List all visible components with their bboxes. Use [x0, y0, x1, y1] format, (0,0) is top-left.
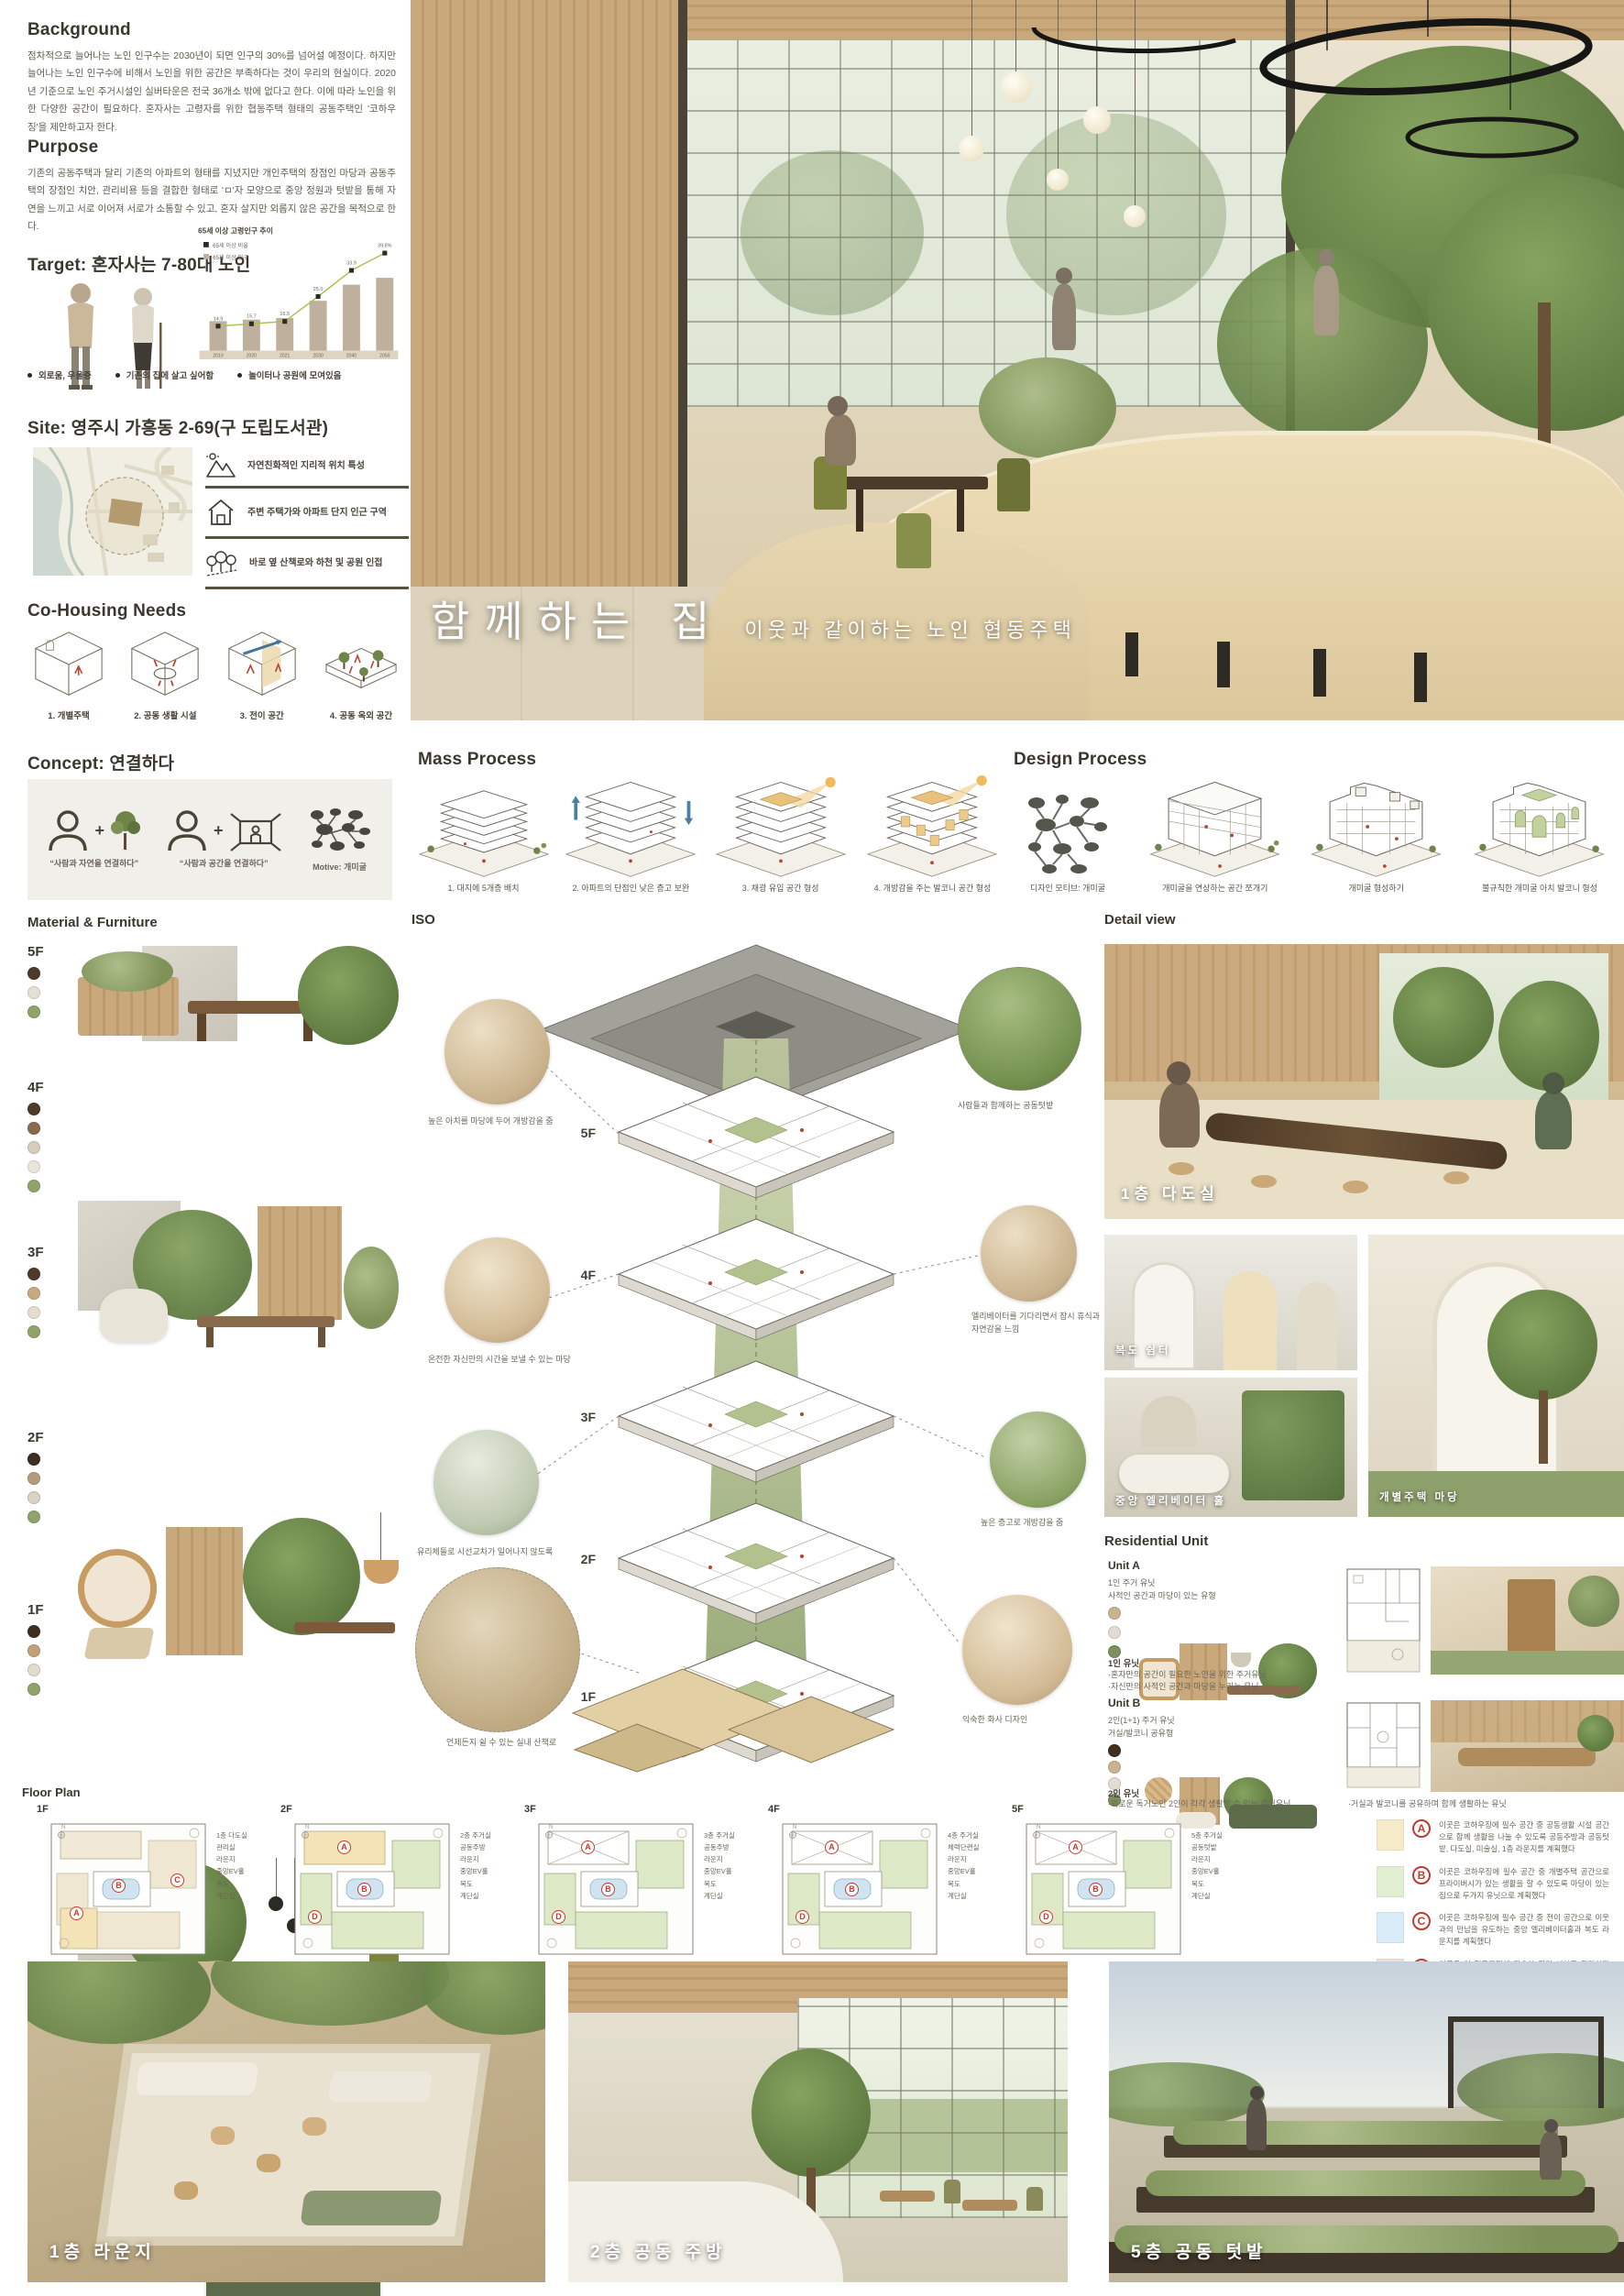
chair-olive: [997, 458, 1030, 511]
mass-step-1-diagram: [415, 775, 553, 878]
callout-high-ceiling: [990, 1412, 1086, 1508]
design-step-caption: 디자인 모티브: 개미굴: [1008, 883, 1127, 895]
design-step-2-diagram: [1144, 775, 1286, 878]
iso-note-right: 엘리베이터를 기다리면서 잠시 휴식과 자연감을 느낌: [971, 1311, 1100, 1335]
svg-text:N: N: [1037, 1825, 1040, 1830]
photo-caption: 중앙 엘리베이터 홀: [1115, 1493, 1226, 1508]
callout-indoor-walkway: [415, 1567, 580, 1732]
plan-marker: B: [601, 1883, 615, 1896]
svg-text:14.9: 14.9: [214, 316, 224, 322]
plan-label: 5F: [1012, 1804, 1024, 1815]
planter-greens: [211, 1961, 449, 2026]
material-color-dot: [1108, 1744, 1121, 1757]
iso-note-left: 온전한 자신만의 시간을 보낼 수 있는 마당: [428, 1354, 575, 1367]
photo-caption: 개별주택 마당: [1379, 1489, 1460, 1504]
list-item: 공동주방: [704, 1841, 761, 1853]
iso-cube-shared-facility: [125, 627, 205, 704]
list-item: 라운지: [704, 1853, 761, 1865]
elevator-hall-photo: 중앙 엘리베이터 홀: [1104, 1378, 1357, 1517]
svg-text:2021: 2021: [280, 353, 290, 358]
wood-stool: [294, 1622, 395, 1633]
floor-label: 4F: [27, 1080, 44, 1095]
legend-row-b: B 이곳은 코하우징에 필수 공간 중 개별주택 공간으로 프라이버시가 있는 …: [1377, 1866, 1624, 1903]
svg-text:3F: 3F: [581, 1410, 597, 1424]
unit-note: ·자신만의 사적인 공간과 마당을 누리는 유닛: [1108, 1681, 1337, 1694]
mass-step-caption: 1. 대지에 5개층 배치: [412, 883, 554, 895]
planter-crops: [1146, 2170, 1586, 2196]
floor-plan-3f: 3F N A B D 3층 주거실공동주방라운지중앙EV홀복도계단실: [524, 1804, 536, 1815]
chair-olive: [896, 513, 931, 568]
material-color-dot: [27, 1287, 40, 1300]
plan-marker: D: [796, 1910, 809, 1924]
callout-private-yard: [444, 1237, 550, 1343]
private-yard-photo: 개별주택 마당: [1368, 1235, 1624, 1517]
pendant-cord: [276, 1858, 277, 1898]
concept-caption: “사람과 자연을 연결하다”: [47, 858, 141, 871]
floorplan-title: Floor Plan: [22, 1785, 81, 1799]
ring-lights: [997, 0, 1624, 211]
unit-label: 1인 유닛: [1108, 1656, 1139, 1669]
site-map: [33, 447, 192, 576]
person-standing: [1313, 266, 1339, 335]
chair: [944, 2180, 960, 2203]
svg-text:2040: 2040: [346, 353, 357, 358]
material-color-dot: [27, 1511, 40, 1523]
list-item: 체력단련실: [948, 1841, 1004, 1853]
design-step-caption: 개미굴 형성하기: [1303, 883, 1450, 895]
bench-leg: [197, 1014, 206, 1041]
needs-title: Co-Housing Needs: [27, 601, 186, 621]
plan-marker: A: [70, 1906, 83, 1920]
chair: [1026, 2187, 1043, 2211]
light-cord: [971, 0, 972, 137]
iso-cube-private-home: [28, 627, 109, 704]
material-color-dot: [27, 1180, 40, 1192]
list-item: 관리실: [216, 1841, 273, 1853]
legend-swatch: [1377, 1866, 1404, 1897]
unit-desc: 2인(1+1) 주거 유닛 거실/발코니 공유형: [1108, 1714, 1245, 1741]
person-head: [1544, 2119, 1558, 2133]
plant-wall: [1242, 1390, 1344, 1500]
material-floor-5f: 5F: [27, 944, 44, 1018]
legend-text: 이곳은 코하우징에 필수 공간 중 개별주택 공간으로 프라이버시가 있는 생활…: [1439, 1866, 1609, 1903]
material-color-dot: [27, 1306, 40, 1319]
floor-cushion: [1343, 1181, 1368, 1193]
list-item: 공동텃밭: [1191, 1841, 1248, 1853]
wood-slat-wall: [411, 0, 686, 642]
stool: [1414, 653, 1427, 702]
svg-text:N: N: [793, 1825, 796, 1830]
plan-marker: A: [825, 1840, 839, 1854]
floor-label: 5F: [27, 944, 44, 960]
divider: [205, 587, 409, 589]
floor-cushion: [1169, 1162, 1194, 1175]
pouf: [257, 2154, 280, 2172]
bottom-caption: 5층 공동 텃밭: [1131, 2238, 1267, 2263]
material-color-dot: [27, 1491, 40, 1504]
svg-text:2F: 2F: [581, 1552, 597, 1566]
svg-text:2050: 2050: [379, 353, 390, 358]
plan-marker: C: [170, 1873, 184, 1887]
green-sofa: [300, 2191, 442, 2225]
plan-drawing: N: [46, 1820, 211, 1958]
plan-marker: B: [845, 1883, 859, 1896]
concept-motive-caption: Motive: 개미굴: [306, 862, 372, 874]
mass-step-caption: 4. 개방감을 주는 발코니 공간 형성: [857, 883, 1008, 895]
material-dots: [27, 1103, 44, 1192]
plus-icon: +: [94, 821, 104, 840]
floor-plan-2f: 2F N A B D 2층 주거실공동주방라운지중앙EV홀복도계단실: [280, 1804, 292, 1815]
needs-diagrams: 1. 개별주택 2. 공동 생활 시설 3. 전이 공간 4. 공동 옥외 공간: [24, 627, 409, 721]
target-bullet: 기존의 집에 살고 싶어함: [126, 368, 214, 381]
iso-note-left: 높은 아치를 마당에 두어 개방감을 줌: [428, 1115, 575, 1128]
list-item: 중앙EV홀: [460, 1865, 517, 1877]
mass-step-2-diagram: [562, 775, 699, 878]
pergola-frame: [1448, 2016, 1604, 2108]
bottom-caption: 1층 라운지: [49, 2238, 156, 2263]
window-post: [678, 0, 687, 605]
needs-item: 2. 공동 생활 시설: [120, 709, 210, 721]
needs-item: 3. 전이 공간: [217, 709, 307, 721]
plan-drawing: N: [290, 1820, 455, 1958]
tree-sample: [298, 946, 399, 1045]
list-item: 계단실: [1191, 1890, 1248, 1902]
material-color-dot: [27, 1472, 40, 1485]
material-color-dot: [27, 1160, 40, 1173]
floor-plan-5f: 5F N A B D 5층 주거실공동텃밭라운지중앙EV홀복도계단실: [1012, 1804, 1024, 1815]
svg-text:N: N: [61, 1825, 65, 1830]
bullet-icon: [115, 373, 120, 378]
tree-icon: [110, 809, 141, 851]
material-color-dot: [27, 967, 40, 980]
grass-sample: [344, 1247, 399, 1329]
material-color-dot: [27, 1625, 40, 1638]
plan-label: 3F: [524, 1804, 536, 1815]
presentation-board: Background 점차적으로 늘어나는 노인 인구수는 2030년이 되면 …: [0, 0, 1624, 2296]
material-color-dot: [27, 1122, 40, 1135]
unit-desc: 1인 주거 유닛 사적인 공간과 마당이 있는 유형: [1108, 1576, 1245, 1603]
armchair: [100, 1289, 168, 1342]
material-dots: [27, 1268, 44, 1338]
tea-room-photo: 1층 다도실: [1104, 944, 1624, 1219]
indoor-tree: [752, 2049, 871, 2177]
iso-title: ISO: [411, 912, 435, 928]
plan-marker: A: [1069, 1840, 1082, 1854]
detail-title: Detail view: [1104, 912, 1624, 928]
list-item: 라운지: [1191, 1853, 1248, 1865]
hero-render-image: 함께하는 집 이웃과 같이하는 노인 협동주택: [411, 0, 1624, 720]
arch-lit: [1223, 1271, 1277, 1370]
list-item: 복도: [216, 1878, 273, 1890]
floor-label: 2F: [27, 1430, 44, 1445]
list-item: 라운지: [948, 1853, 1004, 1865]
kitchen-render: 2층 공동 주방: [568, 1961, 1068, 2282]
person-head: [1250, 2086, 1264, 2100]
iso-cube-transition-space: [222, 627, 302, 704]
svg-text:4F: 4F: [581, 1268, 597, 1282]
material-color-dot: [1108, 1607, 1121, 1620]
unit-label: 2인 유닛: [1108, 1786, 1139, 1799]
plan-room-list: 4층 주거실체력단련실라운지중앙EV홀복도계단실: [948, 1829, 1004, 1902]
white-sofa: [328, 2071, 433, 2103]
design-process-title: Design Process: [1014, 750, 1147, 770]
svg-text:2019: 2019: [213, 353, 223, 358]
wood-table: [880, 2191, 935, 2202]
distant-trees: [1109, 2062, 1265, 2126]
design-motive-ant-nest: [1022, 790, 1114, 878]
svg-text:N: N: [549, 1825, 553, 1830]
svg-text:2030: 2030: [313, 353, 323, 358]
grass: [1431, 1651, 1624, 1675]
list-item: 1층 다도실: [216, 1829, 273, 1841]
material-collage-3f: [78, 1512, 399, 1673]
plan-marker: D: [552, 1910, 565, 1924]
tree-trunk: [1539, 1390, 1548, 1464]
design-step-caption: 개미굴을 연상하는 공간 쪼개기: [1139, 883, 1290, 895]
list-item: 계단실: [216, 1890, 273, 1902]
floor-plan-4f: 4F N A B D 4층 주거실체력단련실라운지중앙EV홀복도계단실: [768, 1804, 780, 1815]
list-item: 계단실: [704, 1890, 761, 1902]
stool: [1313, 649, 1326, 697]
table-leg: [957, 489, 964, 532]
indoor-plant: [979, 357, 1116, 458]
tree: [1568, 1576, 1619, 1627]
callout-elevator-lounge: [981, 1205, 1077, 1302]
target-bullet: 놀이터나 공원에 모여있음: [248, 368, 341, 381]
concept-box: + “사람과 자연을 연결하다” + “사람과 공간을 연결하다” Motive…: [27, 779, 392, 900]
site-feature-text: 바로 옆 산책로와 하천 및 공원 인접: [249, 556, 382, 570]
list-item: 중앙EV홀: [948, 1865, 1004, 1877]
plan-marker: B: [357, 1883, 371, 1896]
site-feature-text: 자연친화적인 지리적 위치 특성: [247, 459, 365, 473]
wood-slat-panel: [166, 1527, 243, 1655]
unit-dots: [1108, 1607, 1121, 1658]
background-title: Background: [27, 20, 131, 40]
legend-row-a: A 이곳은 코하우징에 필수 공간 중 공동생활 시설 공간으로 함께 생활을 …: [1377, 1819, 1624, 1856]
arch: [1297, 1282, 1337, 1370]
callout-glass-screen: [433, 1430, 539, 1535]
plan-room-list: 2층 주거실공동주방라운지중앙EV홀복도계단실: [460, 1829, 517, 1902]
unit-a-photo: [1431, 1566, 1624, 1675]
bottom-caption: 2층 공동 주방: [590, 2238, 727, 2263]
rattan-chair: [78, 1549, 157, 1628]
material-color-dot: [27, 1141, 40, 1154]
design-step-caption: 불규칙한 개미굴 아치 발코니 형성: [1462, 883, 1618, 895]
mass-step-caption: 3. 채광 유입 공간 형성: [708, 883, 854, 895]
legend-swatch: [1377, 1912, 1404, 1943]
material-floor-1f: 1F: [27, 1602, 44, 1696]
person-head: [1318, 249, 1334, 266]
needs-item: 1. 개별주택: [24, 709, 114, 721]
pendant-cord: [380, 1512, 381, 1562]
unit-b-floor-plan: [1344, 1700, 1422, 1792]
iso-note-right: 높은 층고로 개방감을 줌: [981, 1517, 1100, 1530]
hero-title-block: 함께하는 집 이웃과 같이하는 노인 협동주택: [431, 588, 1076, 649]
list-item: 라운지: [216, 1853, 273, 1865]
svg-text:16.5: 16.5: [280, 312, 290, 317]
list-item: 3층 주거실: [704, 1829, 761, 1841]
list-item: 계단실: [948, 1890, 1004, 1902]
corridor-rest-photo: 복도 쉼터: [1104, 1235, 1357, 1370]
plan-room-list: 5층 주거실공동텃밭라운지중앙EV홀복도계단실: [1191, 1829, 1248, 1902]
photo-caption: 1층 다도실: [1121, 1181, 1219, 1203]
bench-leg: [318, 1327, 325, 1347]
planter-greens: [27, 1961, 211, 2044]
person-standing: [1540, 2132, 1562, 2180]
mass-process-title: Mass Process: [418, 750, 536, 770]
background-text: 점차적으로 늘어나는 노인 인구수는 2030년이 되면 인구의 30%를 넘어…: [27, 48, 396, 137]
person-head: [1542, 1072, 1564, 1094]
material-color-dot: [27, 1453, 40, 1466]
floor-label: 1F: [27, 1602, 44, 1618]
material-color-dot: [27, 1683, 40, 1696]
space-icon: [229, 808, 282, 852]
wood-slat-panel: [258, 1206, 342, 1320]
plan-marker: A: [581, 1840, 595, 1854]
detail-view-section: Detail view 1층 다도실 복도 쉼터: [1104, 912, 1624, 1810]
pendant-lamp: [1231, 1653, 1251, 1667]
legend-letter: A: [1412, 1819, 1431, 1838]
unit-note: ·거실과 발코니를 공유하며 함께 생활하는 유닛: [1348, 1798, 1559, 1811]
person-standing: [1052, 284, 1076, 350]
plan-marker: B: [1089, 1883, 1103, 1896]
mass-step-3-diagram: [712, 775, 850, 878]
bullet-icon: [237, 373, 242, 378]
plan-label: 2F: [280, 1804, 292, 1815]
pouf: [174, 2181, 198, 2200]
material-color-dot: [27, 1268, 40, 1280]
material-title: Material & Furniture: [27, 915, 158, 930]
person-icon: [166, 808, 208, 852]
svg-text:65세 이상 인구: 65세 이상 인구: [213, 254, 248, 261]
legend-letter: C: [1412, 1912, 1431, 1930]
callout-familiar-design: [962, 1595, 1072, 1705]
unit-note: ·혼자만의 공간이 필요한 노인을 위한 주거유닛: [1108, 1669, 1337, 1682]
material-color-dot: [27, 986, 40, 999]
svg-text:15.7: 15.7: [247, 314, 257, 320]
plan-drawing: N: [1021, 1820, 1186, 1958]
wood-bench: [197, 1316, 335, 1327]
planter-greenery: [82, 951, 173, 992]
plan-room-list: 3층 주거실공동주방라운지중앙EV홀복도계단실: [704, 1829, 761, 1902]
poster-subtitle: 이웃과 같이하는 노인 협동주택: [744, 614, 1075, 649]
plan-label: 4F: [768, 1804, 780, 1815]
rattan-chair-base: [83, 1628, 154, 1659]
material-floor-4f: 4F: [27, 1080, 44, 1192]
legend-letter: B: [1412, 1866, 1431, 1884]
list-item: 2층 주거실: [460, 1829, 517, 1841]
tree: [1393, 967, 1494, 1068]
person-seated: [825, 414, 856, 466]
floor-cushion: [1251, 1175, 1277, 1188]
list-item: 중앙EV홀: [704, 1865, 761, 1877]
plan-marker: B: [112, 1879, 126, 1893]
material-color-dot: [1108, 1626, 1121, 1639]
material-dots: [27, 1625, 44, 1696]
needs-item: 4. 공동 옥외 공간: [313, 709, 409, 721]
svg-text:65세 이상 비율: 65세 이상 비율: [213, 242, 248, 249]
person-head: [828, 396, 848, 416]
svg-text:N: N: [305, 1825, 309, 1830]
list-item: 계단실: [460, 1890, 517, 1902]
material-collage-4f: [78, 1201, 399, 1347]
svg-text:33.9: 33.9: [346, 260, 357, 266]
list-item: 복도: [460, 1878, 517, 1890]
planter-crops: [1173, 2121, 1558, 2145]
iso-note-left: 유리체들로 시선교차가 일어나지 않도록: [417, 1546, 568, 1559]
list-item: 복도: [704, 1878, 761, 1890]
unit-a-block: Unit A 1인 주거 유닛 사적인 공간과 마당이 있는 유형 1인 유닛 …: [1108, 1559, 1624, 1693]
trees-icon: [205, 548, 238, 577]
wood-table: [962, 2200, 1017, 2211]
aging-population-chart: 65세 이상 고령인구 추이65세 이상 비율65세 이상 인구20192020…: [189, 220, 409, 367]
unit-a-floor-plan: [1344, 1566, 1422, 1675]
list-item: 5층 주거실: [1191, 1829, 1248, 1841]
mass-process-steps: 1. 대지에 5개층 배치 2. 아파트의 단점인 낮은 층고 보완 3. 채광: [412, 775, 1008, 895]
person-seated: [1159, 1082, 1200, 1148]
callout-rooftop-garden: [958, 967, 1081, 1091]
plan-drawing: N: [533, 1820, 698, 1958]
svg-text:25.0: 25.0: [313, 287, 324, 292]
legend-row-c: C 이곳은 코하우징에 필수 공간 중 전이 공간으로 이웃과의 만남을 유도하…: [1377, 1912, 1624, 1949]
concept-caption: “사람과 공간을 연결하다”: [166, 858, 282, 871]
mountain-icon: [205, 452, 236, 479]
iso-note-right: 익숙한 화사 디자인: [962, 1714, 1091, 1727]
material-dots: [27, 1453, 44, 1523]
target-bullets: 외로움, 우울증 기존의 집에 살고 싶어함 놀이터나 공원에 모여있음: [27, 368, 412, 381]
plant: [1577, 1715, 1614, 1752]
planter-greens: [422, 1961, 545, 2035]
pouf: [211, 2126, 235, 2145]
legend-text: 이곳은 코하우징에 필수 공간 중 공동생활 시설 공간으로 함께 생활을 나눌…: [1439, 1819, 1609, 1856]
iso-box-outdoor-space: [319, 627, 403, 704]
material-color-dot: [27, 1325, 40, 1338]
unit-note: ·외로운 독거노인 2인이 각각 생활할 수 있는 주거유닛: [1108, 1798, 1346, 1811]
yard-tree: [1487, 1290, 1597, 1400]
list-item: 4층 주거실: [948, 1829, 1004, 1841]
person-icon: [47, 808, 89, 852]
list-item: 공동주방: [460, 1841, 517, 1853]
material-color-dot: [27, 1103, 40, 1115]
plan-marker: D: [1039, 1910, 1053, 1924]
person-seated: [1535, 1091, 1572, 1149]
list-item: 라운지: [460, 1853, 517, 1865]
photo-caption: 복도 쉼터: [1115, 1343, 1171, 1357]
svg-text:39.8%: 39.8%: [378, 244, 392, 249]
bench-leg: [206, 1327, 214, 1347]
material-color-dot: [27, 1005, 40, 1018]
bullet-icon: [27, 373, 32, 378]
stool: [1125, 632, 1138, 676]
material-dots: [27, 967, 44, 1018]
iso-note-left: 언제든지 쉴 수 있는 실내 산책로: [446, 1737, 602, 1750]
pendant-globe-light: [959, 136, 984, 161]
plan-marker: D: [308, 1910, 322, 1924]
target-bullet: 외로움, 우울증: [38, 368, 92, 381]
floor-label: 3F: [27, 1245, 44, 1260]
ant-nest-image: [306, 806, 372, 853]
site-features: 자연친화적인 지리적 위치 특성 주변 주택가와 아파트 단지 인근 구역 바로…: [205, 445, 409, 589]
material-color-dot: [27, 1664, 40, 1676]
list-item: 중앙EV홀: [1191, 1865, 1248, 1877]
residential-title: Residential Unit: [1104, 1533, 1208, 1549]
house-icon: [205, 498, 236, 527]
plan-drawing: N: [777, 1820, 942, 1958]
list-item: 복도: [1191, 1878, 1248, 1890]
lounge-render: 1층 라운지: [27, 1961, 545, 2282]
legend-text: 이곳은 코하우징에 필수 공간 중 전이 공간으로 이웃과의 만남을 유도하는 …: [1439, 1912, 1609, 1949]
floor-cushion: [1443, 1171, 1469, 1184]
